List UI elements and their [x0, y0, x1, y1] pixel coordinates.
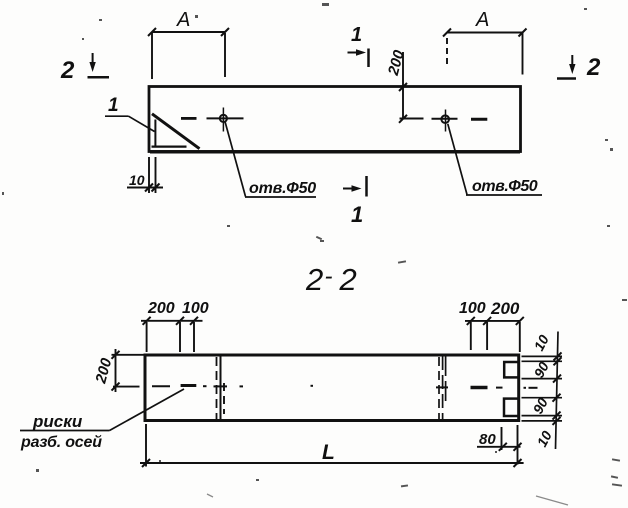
svg-text:200: 200 [147, 300, 175, 317]
svg-text:1: 1 [108, 95, 119, 116]
svg-text:100: 100 [459, 300, 486, 317]
svg-text:разб. осей: разб. осей [20, 434, 102, 451]
svg-text:2: 2 [339, 262, 357, 297]
svg-text:1: 1 [351, 202, 363, 227]
svg-text:200: 200 [490, 299, 520, 318]
svg-text:риски: риски [32, 412, 83, 431]
svg-text:2: 2 [60, 57, 75, 84]
svg-text:2: 2 [586, 54, 601, 81]
svg-text:80: 80 [479, 431, 496, 448]
svg-text:отв.Ф50: отв.Ф50 [249, 180, 316, 197]
svg-text:100: 100 [182, 300, 209, 317]
svg-text:отв.Ф50: отв.Ф50 [472, 178, 538, 195]
svg-text:A: A [176, 9, 190, 31]
svg-text:10: 10 [129, 172, 145, 188]
svg-text:2: 2 [305, 262, 323, 297]
svg-text:1: 1 [351, 24, 362, 46]
svg-text:-: - [325, 263, 333, 290]
svg-text:A: A [475, 9, 489, 31]
svg-text:L: L [322, 441, 335, 464]
